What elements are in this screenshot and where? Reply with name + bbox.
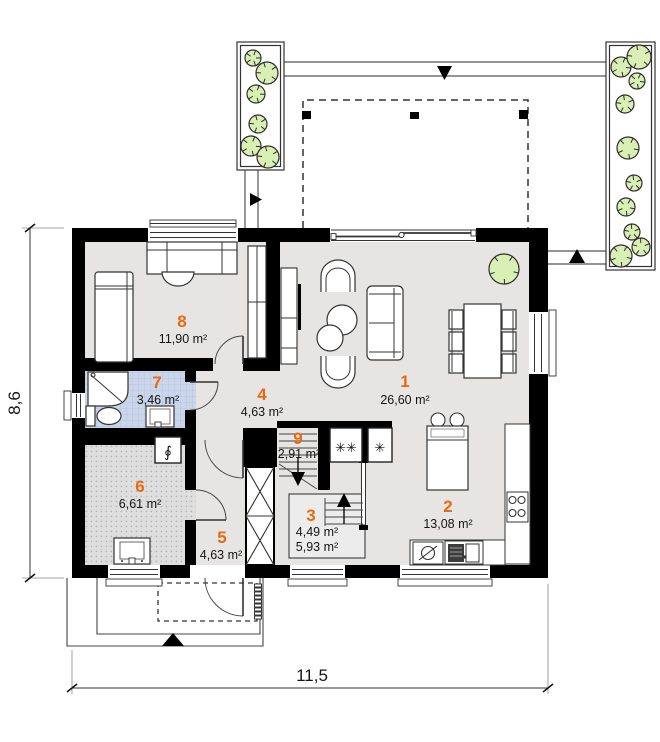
porch-roof-outline [158,583,257,621]
door-handle-icon [399,232,404,237]
sofa [367,286,403,360]
entrance-porch [67,578,263,646]
laundry-sink [114,538,150,564]
window-bathroom [64,391,85,420]
front-door [190,565,245,616]
room-area-1: 26,60 m² [380,393,429,407]
desk [147,242,237,274]
room-area-6: 6,61 m² [119,497,161,511]
dining-chair [502,332,516,351]
terrace-sliding-door [330,228,476,242]
floor-plan-drawing: ✳✳ ✳ [0,0,660,742]
cooktop [507,492,528,522]
dining-chair [449,332,463,351]
chimney-shaft [246,467,274,565]
dimension-bottom: 11,5 [67,584,553,694]
room-area-3: 4,49 m² [296,525,338,539]
bush-icon [610,245,632,267]
room-number-9: 9 [293,429,302,448]
dining-chair [449,310,463,329]
coffee-table [317,325,343,351]
bush-twig [640,81,645,82]
armchair [321,260,355,292]
room-area-2: 13,08 m² [423,517,472,531]
window-stair-hall [288,565,347,586]
wardrobe [248,246,266,358]
boiler-symbol: ∮ [164,444,172,461]
room-area-4: 4,63 m² [241,405,283,419]
room-number-8: 8 [177,312,186,331]
dishwasher [413,542,443,564]
bar-stool [450,413,464,427]
window-utility [106,565,162,586]
bar-stool [431,413,445,427]
room-area-3b: 5,93 m² [296,540,338,554]
bush-twig [626,211,627,216]
room-number-7: 7 [152,373,161,392]
room-number-4: 4 [257,385,267,404]
terrace-post [519,110,528,119]
washbasin [146,406,174,427]
dining-table [464,304,501,378]
appliance-symbol: ✳ [375,440,386,455]
foot-grate [255,584,262,619]
room-area-9: 2,91 m² [278,447,320,461]
dimension-width-label: 11,5 [296,666,328,685]
kitchen-sink [445,541,483,564]
dimension-left: 8,6 [5,224,64,582]
room-number-6: 6 [135,477,144,496]
appliance-symbol: ✳✳ [335,440,357,455]
dining-chair [502,354,516,373]
terrace-outline [302,100,528,228]
floor-plan-page: ✳✳ ✳ [0,0,660,742]
bush-twig [627,56,632,57]
room-number-1: 1 [400,372,409,391]
terrace-post [410,112,419,119]
dining-set [449,304,516,378]
dimension-height-label: 8,6 [5,391,24,415]
bush-twig [629,154,630,159]
room-number-5: 5 [217,528,226,547]
bed [95,272,133,362]
window-living-right [529,310,556,376]
bush-twig [626,68,631,69]
room-area-8: 11,90 m² [159,332,207,346]
arrow-down-icon [437,66,452,80]
shower [88,372,128,406]
entrance-arrow-icon [162,633,184,646]
bush-twig [633,175,634,180]
window-kitchen [398,565,492,586]
toilet [86,406,121,426]
terrace-post [302,111,311,119]
bush-icon [257,146,279,168]
room-area-7: 3,46 m² [137,393,179,407]
room-area-5: 4,63 m² [200,548,242,562]
dining-chair [449,354,463,373]
dining-chair [502,310,516,329]
room-number-3: 3 [306,506,315,525]
boiler: ∮ [155,437,181,463]
arrow-right-icon [250,193,262,206]
tv-icon [298,284,301,330]
window-room8 [148,220,238,242]
armchair [321,356,355,388]
room-number-2: 2 [443,497,452,516]
